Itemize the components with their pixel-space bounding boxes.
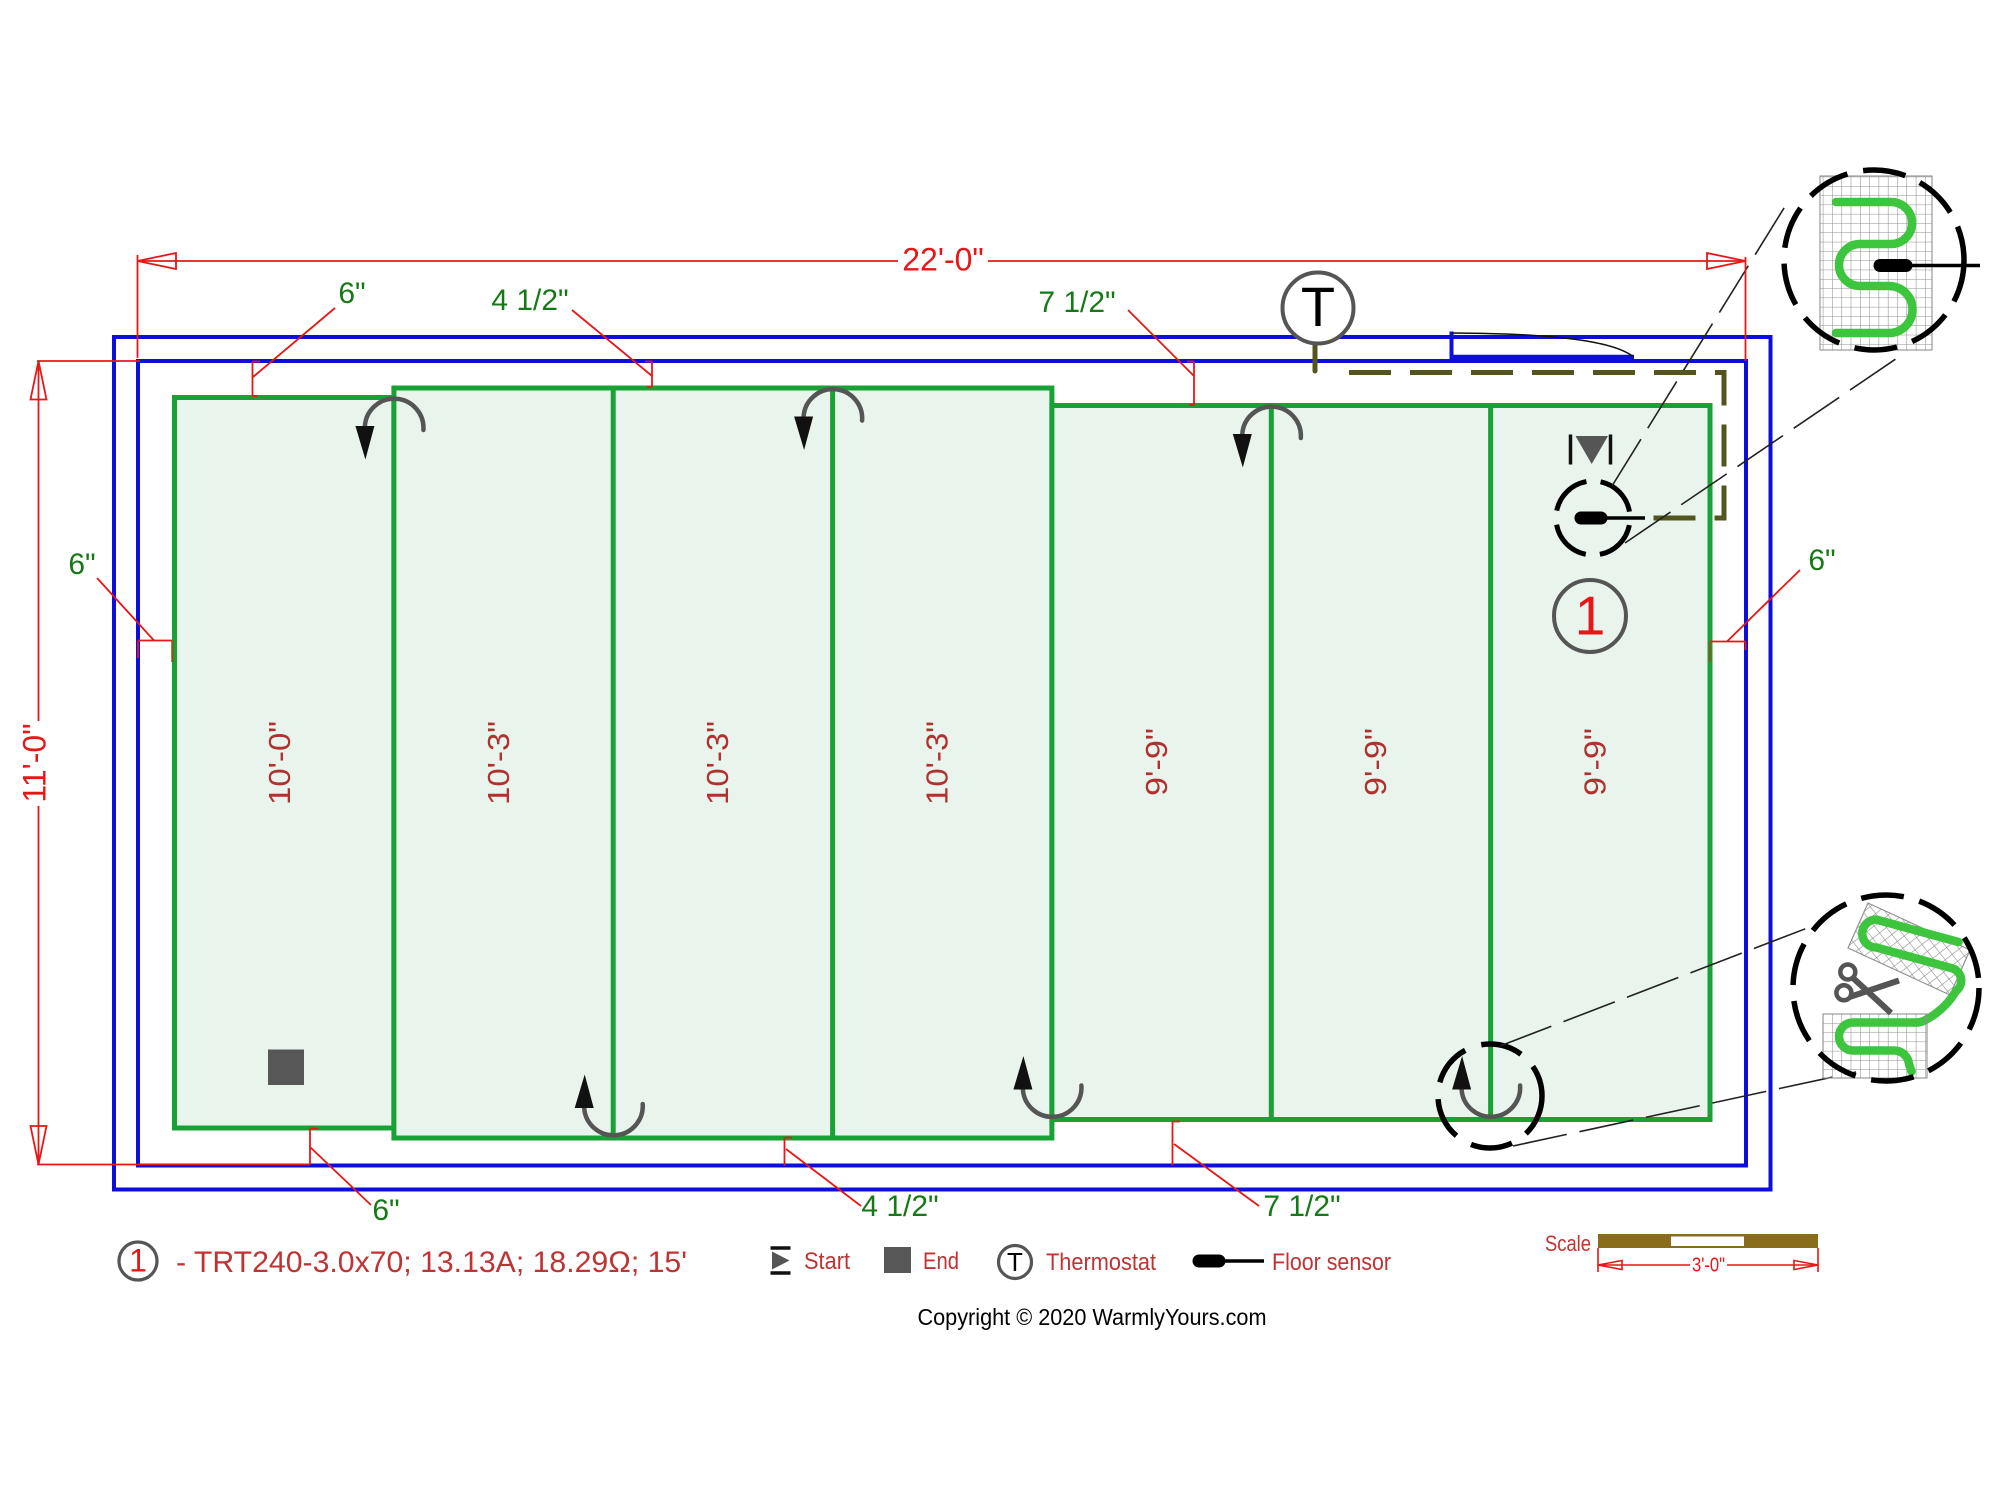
svg-text:10'-3": 10'-3" bbox=[481, 721, 516, 805]
svg-text:End: End bbox=[923, 1248, 959, 1275]
svg-text:T: T bbox=[1301, 275, 1335, 338]
svg-text:7 1/2": 7 1/2" bbox=[1263, 1190, 1340, 1223]
svg-text:9'-9": 9'-9" bbox=[1577, 728, 1612, 796]
svg-text:6": 6" bbox=[338, 277, 365, 310]
svg-text:10'-3": 10'-3" bbox=[700, 721, 735, 805]
svg-text:9'-9": 9'-9" bbox=[1358, 728, 1393, 796]
svg-text:Scale: Scale bbox=[1545, 1231, 1591, 1256]
svg-text:10'-0": 10'-0" bbox=[262, 721, 297, 805]
svg-text:11'-0": 11'-0" bbox=[16, 723, 52, 802]
svg-text:1: 1 bbox=[129, 1242, 147, 1278]
svg-text:6": 6" bbox=[1808, 544, 1835, 577]
svg-text:6": 6" bbox=[372, 1194, 399, 1227]
svg-text:6": 6" bbox=[68, 548, 95, 581]
svg-text:10'-3": 10'-3" bbox=[920, 721, 955, 805]
svg-text:- TRT240-3.0x70; 13.13A; 18.29: - TRT240-3.0x70; 13.13A; 18.29Ω; 15' bbox=[176, 1246, 687, 1279]
svg-text:Start: Start bbox=[804, 1248, 850, 1275]
svg-text:Copyright © 2020 WarmlyYours.c: Copyright © 2020 WarmlyYours.com bbox=[918, 1304, 1267, 1330]
svg-text:22'-0": 22'-0" bbox=[902, 241, 984, 277]
svg-text:T: T bbox=[1007, 1247, 1023, 1277]
svg-text:9'-9": 9'-9" bbox=[1139, 728, 1174, 796]
svg-text:4 1/2": 4 1/2" bbox=[861, 1190, 938, 1223]
svg-text:1: 1 bbox=[1575, 585, 1606, 647]
svg-text:7 1/2": 7 1/2" bbox=[1038, 286, 1115, 319]
svg-text:Thermostat: Thermostat bbox=[1046, 1249, 1156, 1276]
svg-text:Floor sensor: Floor sensor bbox=[1272, 1249, 1391, 1276]
svg-text:3'-0": 3'-0" bbox=[1692, 1254, 1725, 1276]
svg-text:4 1/2": 4 1/2" bbox=[491, 284, 568, 317]
